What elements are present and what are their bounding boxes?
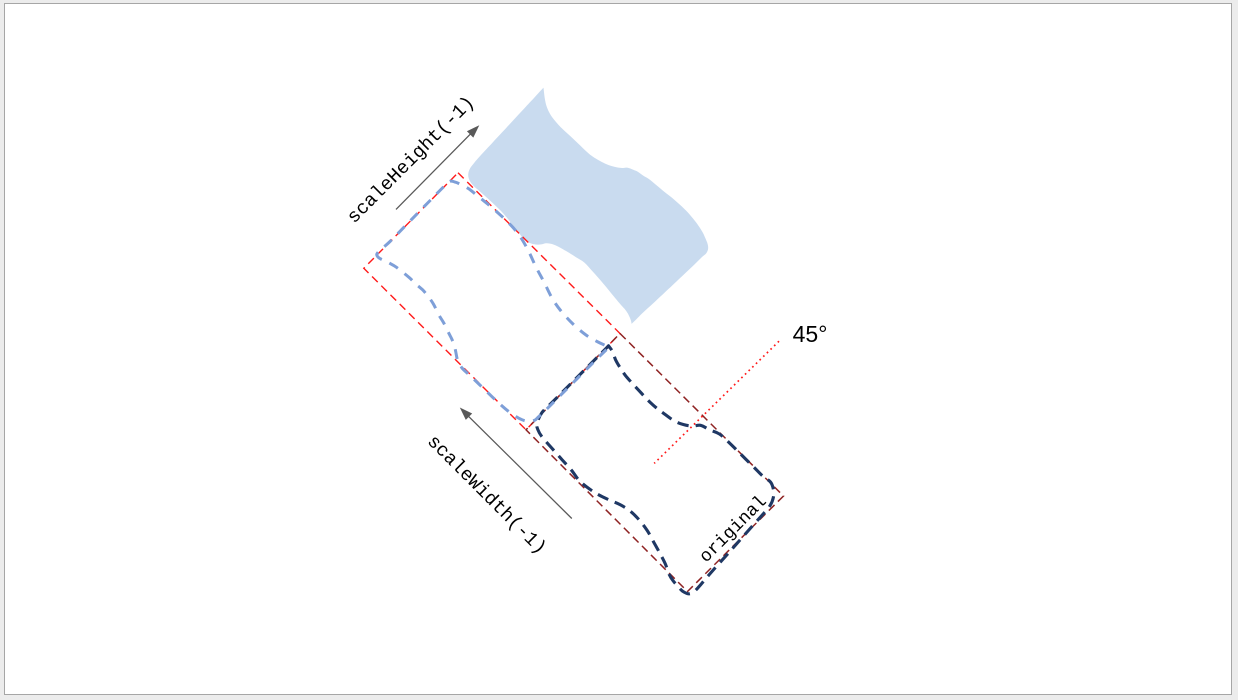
svg-text:45°: 45° xyxy=(793,321,828,347)
svg-text:scaleHeight(-1): scaleHeight(-1) xyxy=(343,92,479,228)
svg-text:scaleWidth(-1): scaleWidth(-1) xyxy=(422,431,550,559)
svg-text:original: original xyxy=(696,492,771,567)
